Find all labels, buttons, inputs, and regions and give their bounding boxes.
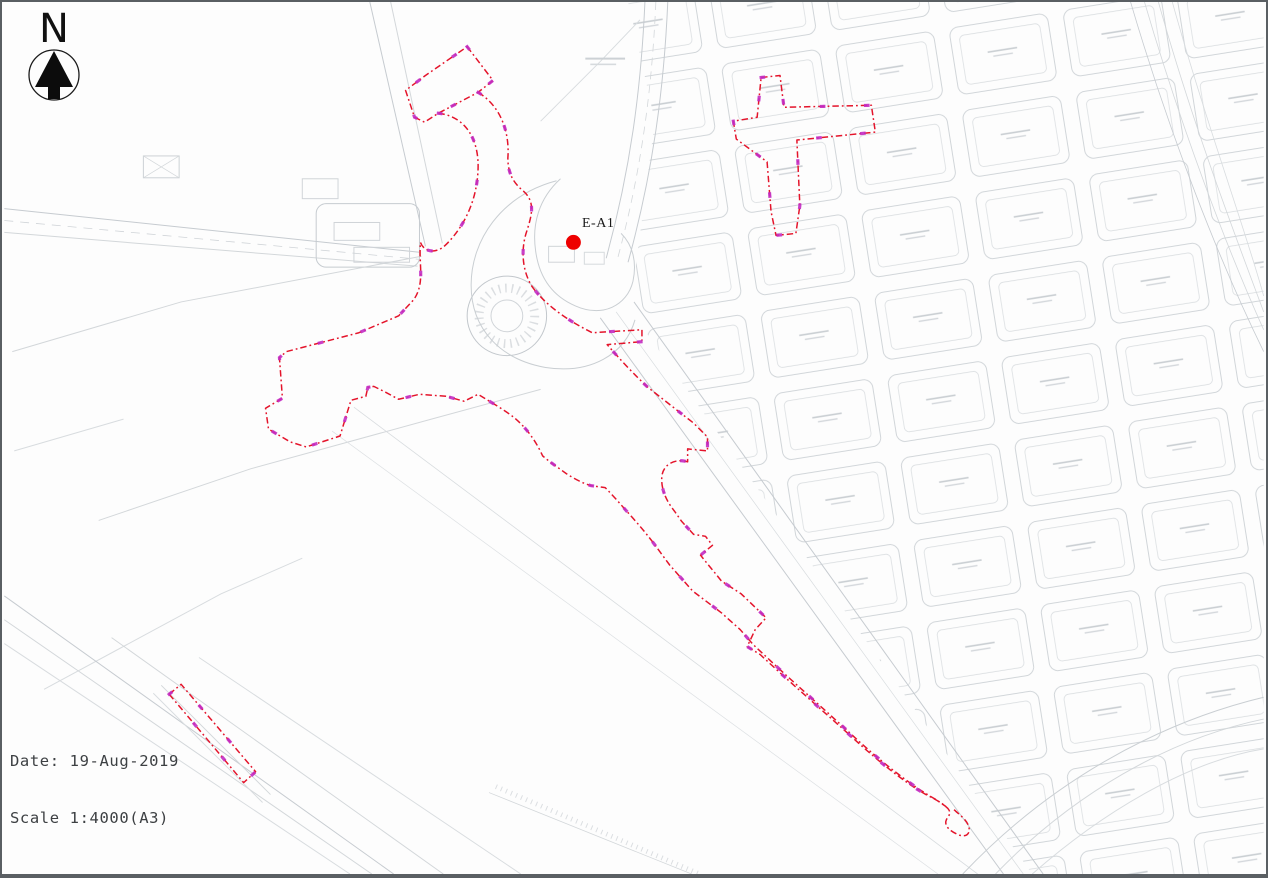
date-value: 19-Aug-2019 <box>70 752 179 770</box>
date-label: Date: <box>10 752 60 770</box>
parcel-grid <box>628 2 1264 874</box>
plan-sheet: N E-A1 Date:19-Aug-2019 Scale1:4000(A3) <box>0 0 1268 878</box>
north-label: N <box>22 10 86 48</box>
north-arrow: N <box>22 10 86 109</box>
boundary-north-flag <box>406 47 493 122</box>
boundary-southwest-strip <box>169 684 255 782</box>
site-marker-dot <box>566 235 581 250</box>
north-arrow-icon <box>25 48 83 104</box>
title-block: Date:19-Aug-2019 Scale1:4000(A3) <box>10 714 179 866</box>
scale-line: Scale1:4000(A3) <box>10 809 179 828</box>
scale-label: Scale <box>10 809 60 827</box>
scale-value: 1:4000(A3) <box>70 809 169 827</box>
date-line: Date:19-Aug-2019 <box>10 752 179 771</box>
site-marker-label: E-A1 <box>582 216 614 232</box>
map-canvas <box>2 2 1266 874</box>
